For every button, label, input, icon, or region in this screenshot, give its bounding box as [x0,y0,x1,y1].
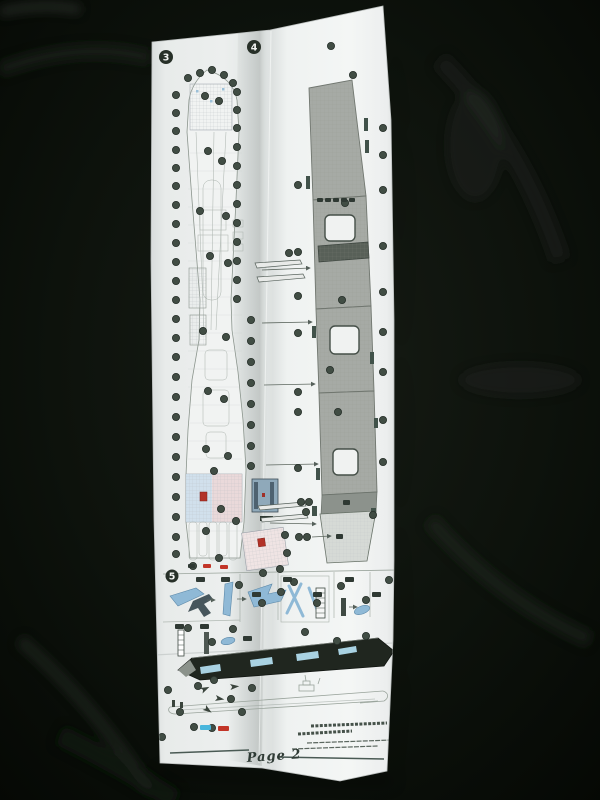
callout-dot [238,708,245,715]
grid-lines [186,474,242,522]
callout-dot [247,358,254,365]
callout-dot [379,288,386,295]
callout-dot [172,201,179,208]
callout-dot [233,162,240,169]
callout-dot [208,66,215,73]
callout-dot [206,252,213,259]
hatch-grid [189,268,206,308]
callout-dot [233,257,240,264]
callout-dot [210,467,217,474]
callout-dot [172,127,179,134]
part-code-chip [333,198,339,202]
callout-dot [172,373,179,380]
callout-dot [194,682,201,689]
part-code-chip [343,500,350,505]
callout-dot [199,327,206,334]
part-code-chip [345,577,354,582]
callout-dot [220,71,227,78]
callout-dot [172,533,179,540]
callout-dot [247,462,254,469]
instruction-sheet: Page 2 3 4 5 [151,6,397,781]
callout-dot [362,632,369,639]
photo-canvas: Page 2 3 4 5 [0,0,600,800]
callout-dot [233,143,240,150]
part-code-chip [188,564,195,568]
callout-dot [326,366,333,373]
deck-fleck [222,88,225,91]
callout-dot [172,353,179,360]
step-4-label: 4 [251,43,258,54]
callout-dot [294,329,301,336]
callout-dot [233,276,240,283]
callout-dot [172,182,179,189]
callout-dot [247,400,254,407]
callout-dot [233,200,240,207]
callout-dot [233,88,240,95]
red-marker [200,492,207,501]
callout-dot [222,333,229,340]
callout-dot [285,249,292,256]
callout-dot [235,581,242,588]
callout-dot [303,533,310,540]
callout-dot [281,531,288,538]
part-code-chip [372,592,381,597]
callout-dot [233,181,240,188]
part-code-chip [221,577,230,582]
callout-dot [190,723,197,730]
part-code-chip [200,725,211,730]
callout-dot [172,239,179,246]
callout-dot [233,124,240,131]
callout-dot [334,408,341,415]
callout-dot [210,676,217,683]
callout-dot [204,147,211,154]
callout-dot [218,157,225,164]
callout-dot [313,599,320,606]
part-code-chip [317,198,323,202]
red-marker [258,538,266,547]
callout-dot [248,684,255,691]
callout-dot [258,599,265,606]
callout-dot [297,498,304,505]
callout-dot [229,79,236,86]
part-code-chip [243,636,252,641]
callout-dot [379,186,386,193]
callout-dot [220,395,227,402]
deck-grid [319,391,377,495]
callout-dot [379,416,386,423]
callout-dot [294,292,301,299]
callout-dot [302,508,309,515]
callout-dot [224,259,231,266]
callout-dot [294,181,301,188]
callout-dot [379,124,386,131]
callout-dot [184,74,191,81]
callout-dot [369,511,376,518]
part-code-chip [349,198,355,202]
callout-dot [259,569,266,576]
callout-dot [217,505,224,512]
part-code-chip [336,534,343,539]
callout-dot [202,527,209,534]
callout-dot [362,596,369,603]
step-5-marker: 5 [166,570,179,583]
callout-dot [247,316,254,323]
callout-dot [247,421,254,428]
callout-dot [294,408,301,415]
callout-dot [283,549,290,556]
callout-dot [379,151,386,158]
part-code-chip [200,624,209,629]
deck-fleck [196,90,199,93]
callout-dot [208,638,215,645]
callout-dot [294,248,301,255]
callout-dot [294,388,301,395]
part-code-chip [325,198,331,202]
part-code-chip [252,592,261,597]
callout-dot [247,379,254,386]
callout-dot [204,387,211,394]
callout-dot [233,295,240,302]
elevator-cutout-2 [330,326,359,354]
part-code-chip [220,565,228,569]
callout-dot [277,588,284,595]
callout-dot [172,550,179,557]
callout-dot [196,207,203,214]
callout-dot [172,220,179,227]
callout-dot [172,433,179,440]
colored-deck-grid [186,474,242,522]
callout-dot [294,464,301,471]
elevator-cutout-3 [333,449,358,475]
callout-dot [338,296,345,303]
step-5-label: 5 [169,572,176,583]
callout-dot [172,315,179,322]
callout-dot [276,565,283,572]
callout-dot [172,453,179,460]
callout-dot [333,637,340,644]
callout-dot [305,498,312,505]
callout-dot [176,708,183,715]
callout-dot [247,442,254,449]
step-4-marker: 4 [247,40,261,54]
part-code-chip [196,577,205,582]
callout-dot [172,146,179,153]
callout-dot [172,493,179,500]
deck-fleck [210,100,213,103]
callout-dot [233,106,240,113]
callout-dot [349,71,356,78]
callout-dot [172,91,179,98]
callout-dot [379,328,386,335]
callout-dot [172,513,179,520]
callout-dot [172,413,179,420]
callout-dot [215,554,222,561]
callout-dot [379,242,386,249]
callout-dot [227,695,234,702]
callout-dot [233,238,240,245]
callout-dot [201,92,208,99]
callout-dot [233,219,240,226]
part-code-chip [203,564,211,568]
part-code-chip [341,198,347,202]
callout-dot [327,42,334,49]
callout-dot [164,686,171,693]
callout-dot [301,628,308,635]
callout-dot [172,164,179,171]
callout-dot [184,624,191,631]
callout-dot [172,334,179,341]
callout-dot [337,582,344,589]
callout-dot [172,393,179,400]
step-3-label: 3 [163,53,170,64]
callout-dot [202,445,209,452]
callout-dot [232,517,239,524]
callout-dot [172,473,179,480]
part-code-chip [218,726,229,731]
callout-dot [247,337,254,344]
fabric-sheen [447,90,503,200]
callout-dot [379,368,386,375]
callout-dot [222,212,229,219]
fabric-sheen [460,364,580,396]
stern-grid [320,511,376,563]
elevator-cutout-1 [325,215,355,241]
callout-dot [172,258,179,265]
callout-dot [172,277,179,284]
part-code-chip [313,592,322,597]
callout-dot [172,109,179,116]
part-code-chip [175,624,184,629]
photograph-of-instruction-sheet: Page 2 3 4 5 [0,0,600,800]
callout-dot [385,576,392,583]
callout-dot [379,458,386,465]
callout-dot [196,69,203,76]
callout-dot [172,296,179,303]
callout-dot [224,452,231,459]
callout-dot [215,97,222,104]
part-code-chip [283,577,292,582]
callout-dot [158,733,165,740]
callout-dot [295,533,302,540]
step-3-marker: 3 [159,50,173,64]
callout-dot [229,625,236,632]
